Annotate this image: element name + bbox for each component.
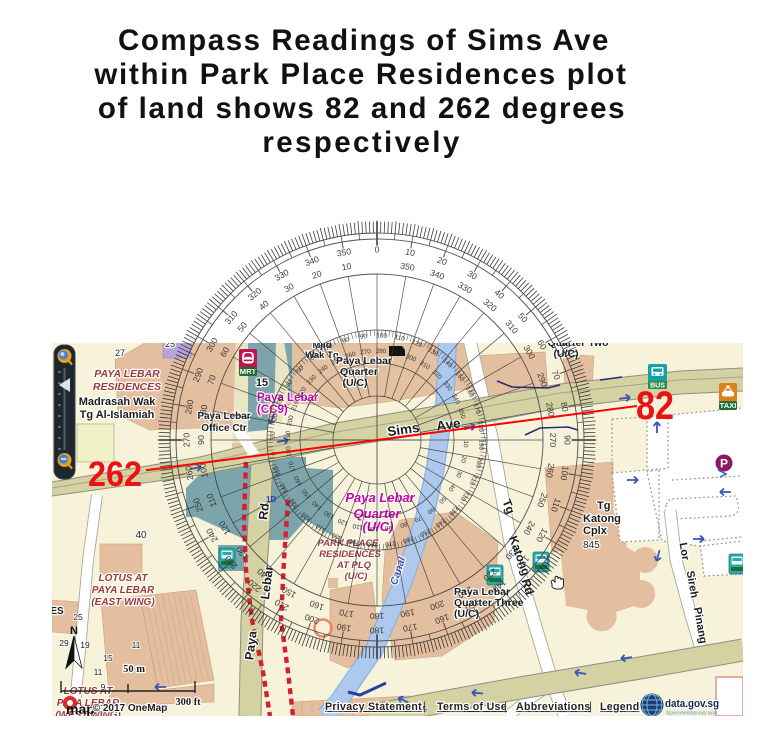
svg-text:RESIDENCES: RESIDENCES xyxy=(319,549,381,560)
svg-text:10: 10 xyxy=(462,440,469,448)
svg-text:190: 190 xyxy=(477,439,484,450)
svg-text:Privacy Statement: Privacy Statement xyxy=(325,701,422,713)
svg-text:map: map xyxy=(66,701,95,717)
svg-text:AT PLQ: AT PLQ xyxy=(336,560,372,571)
svg-text:|: | xyxy=(504,699,507,713)
svg-text:90: 90 xyxy=(563,435,573,445)
svg-text:270: 270 xyxy=(360,348,372,356)
svg-text:|: | xyxy=(589,699,592,713)
svg-text:(U/C): (U/C) xyxy=(553,348,578,360)
svg-text:280: 280 xyxy=(366,540,377,547)
svg-text:280: 280 xyxy=(375,348,386,355)
svg-text:Katong: Katong xyxy=(583,513,621,525)
svg-text:ES: ES xyxy=(50,606,64,617)
svg-text:300 ft: 300 ft xyxy=(175,697,201,708)
svg-text:Terms of Use: Terms of Use xyxy=(437,701,507,713)
svg-text:1D: 1D xyxy=(266,495,276,504)
svg-text:10: 10 xyxy=(269,431,276,439)
svg-text:270: 270 xyxy=(182,433,192,448)
svg-text:10: 10 xyxy=(404,247,415,259)
svg-text:0: 0 xyxy=(375,245,380,255)
svg-text:90: 90 xyxy=(196,435,206,445)
svg-text:845: 845 xyxy=(583,540,600,551)
svg-text:11: 11 xyxy=(132,640,141,650)
svg-text:100: 100 xyxy=(367,525,378,532)
svg-text:190: 190 xyxy=(285,430,292,441)
svg-text:50 m: 50 m xyxy=(123,664,145,675)
svg-text:|: | xyxy=(423,699,426,713)
svg-text:25: 25 xyxy=(73,612,83,622)
svg-text:© 2017 OneMap: © 2017 OneMap xyxy=(93,703,168,714)
svg-text:within Park Place Residences p: within Park Place Residences plot xyxy=(93,58,627,91)
svg-text:Legend: Legend xyxy=(600,701,639,713)
svg-text:(EAST WING): (EAST WING) xyxy=(91,597,155,608)
svg-text:100: 100 xyxy=(376,332,387,339)
svg-text:RESIDENCES: RESIDENCES xyxy=(93,381,161,393)
svg-text:N: N xyxy=(70,625,78,637)
svg-text:P: P xyxy=(720,457,728,471)
svg-text:Madrasah Wak: Madrasah Wak xyxy=(79,396,157,408)
svg-text:of land shows 82 and 262 degre: of land shows 82 and 262 degrees xyxy=(98,92,626,125)
svg-text:80: 80 xyxy=(559,401,571,412)
svg-text:10: 10 xyxy=(341,261,352,273)
svg-text:29: 29 xyxy=(59,638,69,648)
svg-text:180: 180 xyxy=(370,626,385,636)
svg-text:Office Ctr: Office Ctr xyxy=(201,423,247,434)
svg-text:40: 40 xyxy=(135,530,147,541)
svg-text:262: 262 xyxy=(88,455,142,494)
svg-text:15: 15 xyxy=(103,653,113,663)
svg-text:180: 180 xyxy=(370,611,385,621)
svg-text:MRT: MRT xyxy=(240,367,257,376)
svg-text:90: 90 xyxy=(360,333,368,341)
svg-text:data.gov.sg: data.gov.sg xyxy=(665,698,719,710)
svg-text:27: 27 xyxy=(115,348,125,358)
svg-text:Tg: Tg xyxy=(597,500,610,512)
svg-text:Cplx: Cplx xyxy=(583,525,608,537)
svg-text:270: 270 xyxy=(548,433,558,448)
svg-text:PAYA LEBAR: PAYA LEBAR xyxy=(92,585,155,596)
svg-text:(U/C): (U/C) xyxy=(345,571,368,582)
svg-text:Abbreviations: Abbreviations xyxy=(516,701,591,713)
svg-text:#governmentdata easy lucid: #governmentdata easy lucid xyxy=(666,711,716,717)
svg-text:Compass Readings of Sims Ave: Compass Readings of Sims Ave xyxy=(118,24,610,57)
svg-text:11: 11 xyxy=(94,667,103,677)
svg-text:19: 19 xyxy=(80,640,90,650)
svg-text:15: 15 xyxy=(256,377,268,389)
svg-text:LOTUS AT: LOTUS AT xyxy=(99,573,149,584)
svg-text:PAYA LEBAR: PAYA LEBAR xyxy=(94,368,160,380)
svg-text:82: 82 xyxy=(636,384,674,428)
svg-text:Tg Al-Islamiah: Tg Al-Islamiah xyxy=(80,409,155,421)
svg-text:respectively: respectively xyxy=(262,126,461,159)
svg-text:90: 90 xyxy=(384,524,392,532)
svg-text:TAXI: TAXI xyxy=(720,401,737,410)
svg-text:80: 80 xyxy=(198,404,210,415)
svg-text:270: 270 xyxy=(384,539,396,547)
